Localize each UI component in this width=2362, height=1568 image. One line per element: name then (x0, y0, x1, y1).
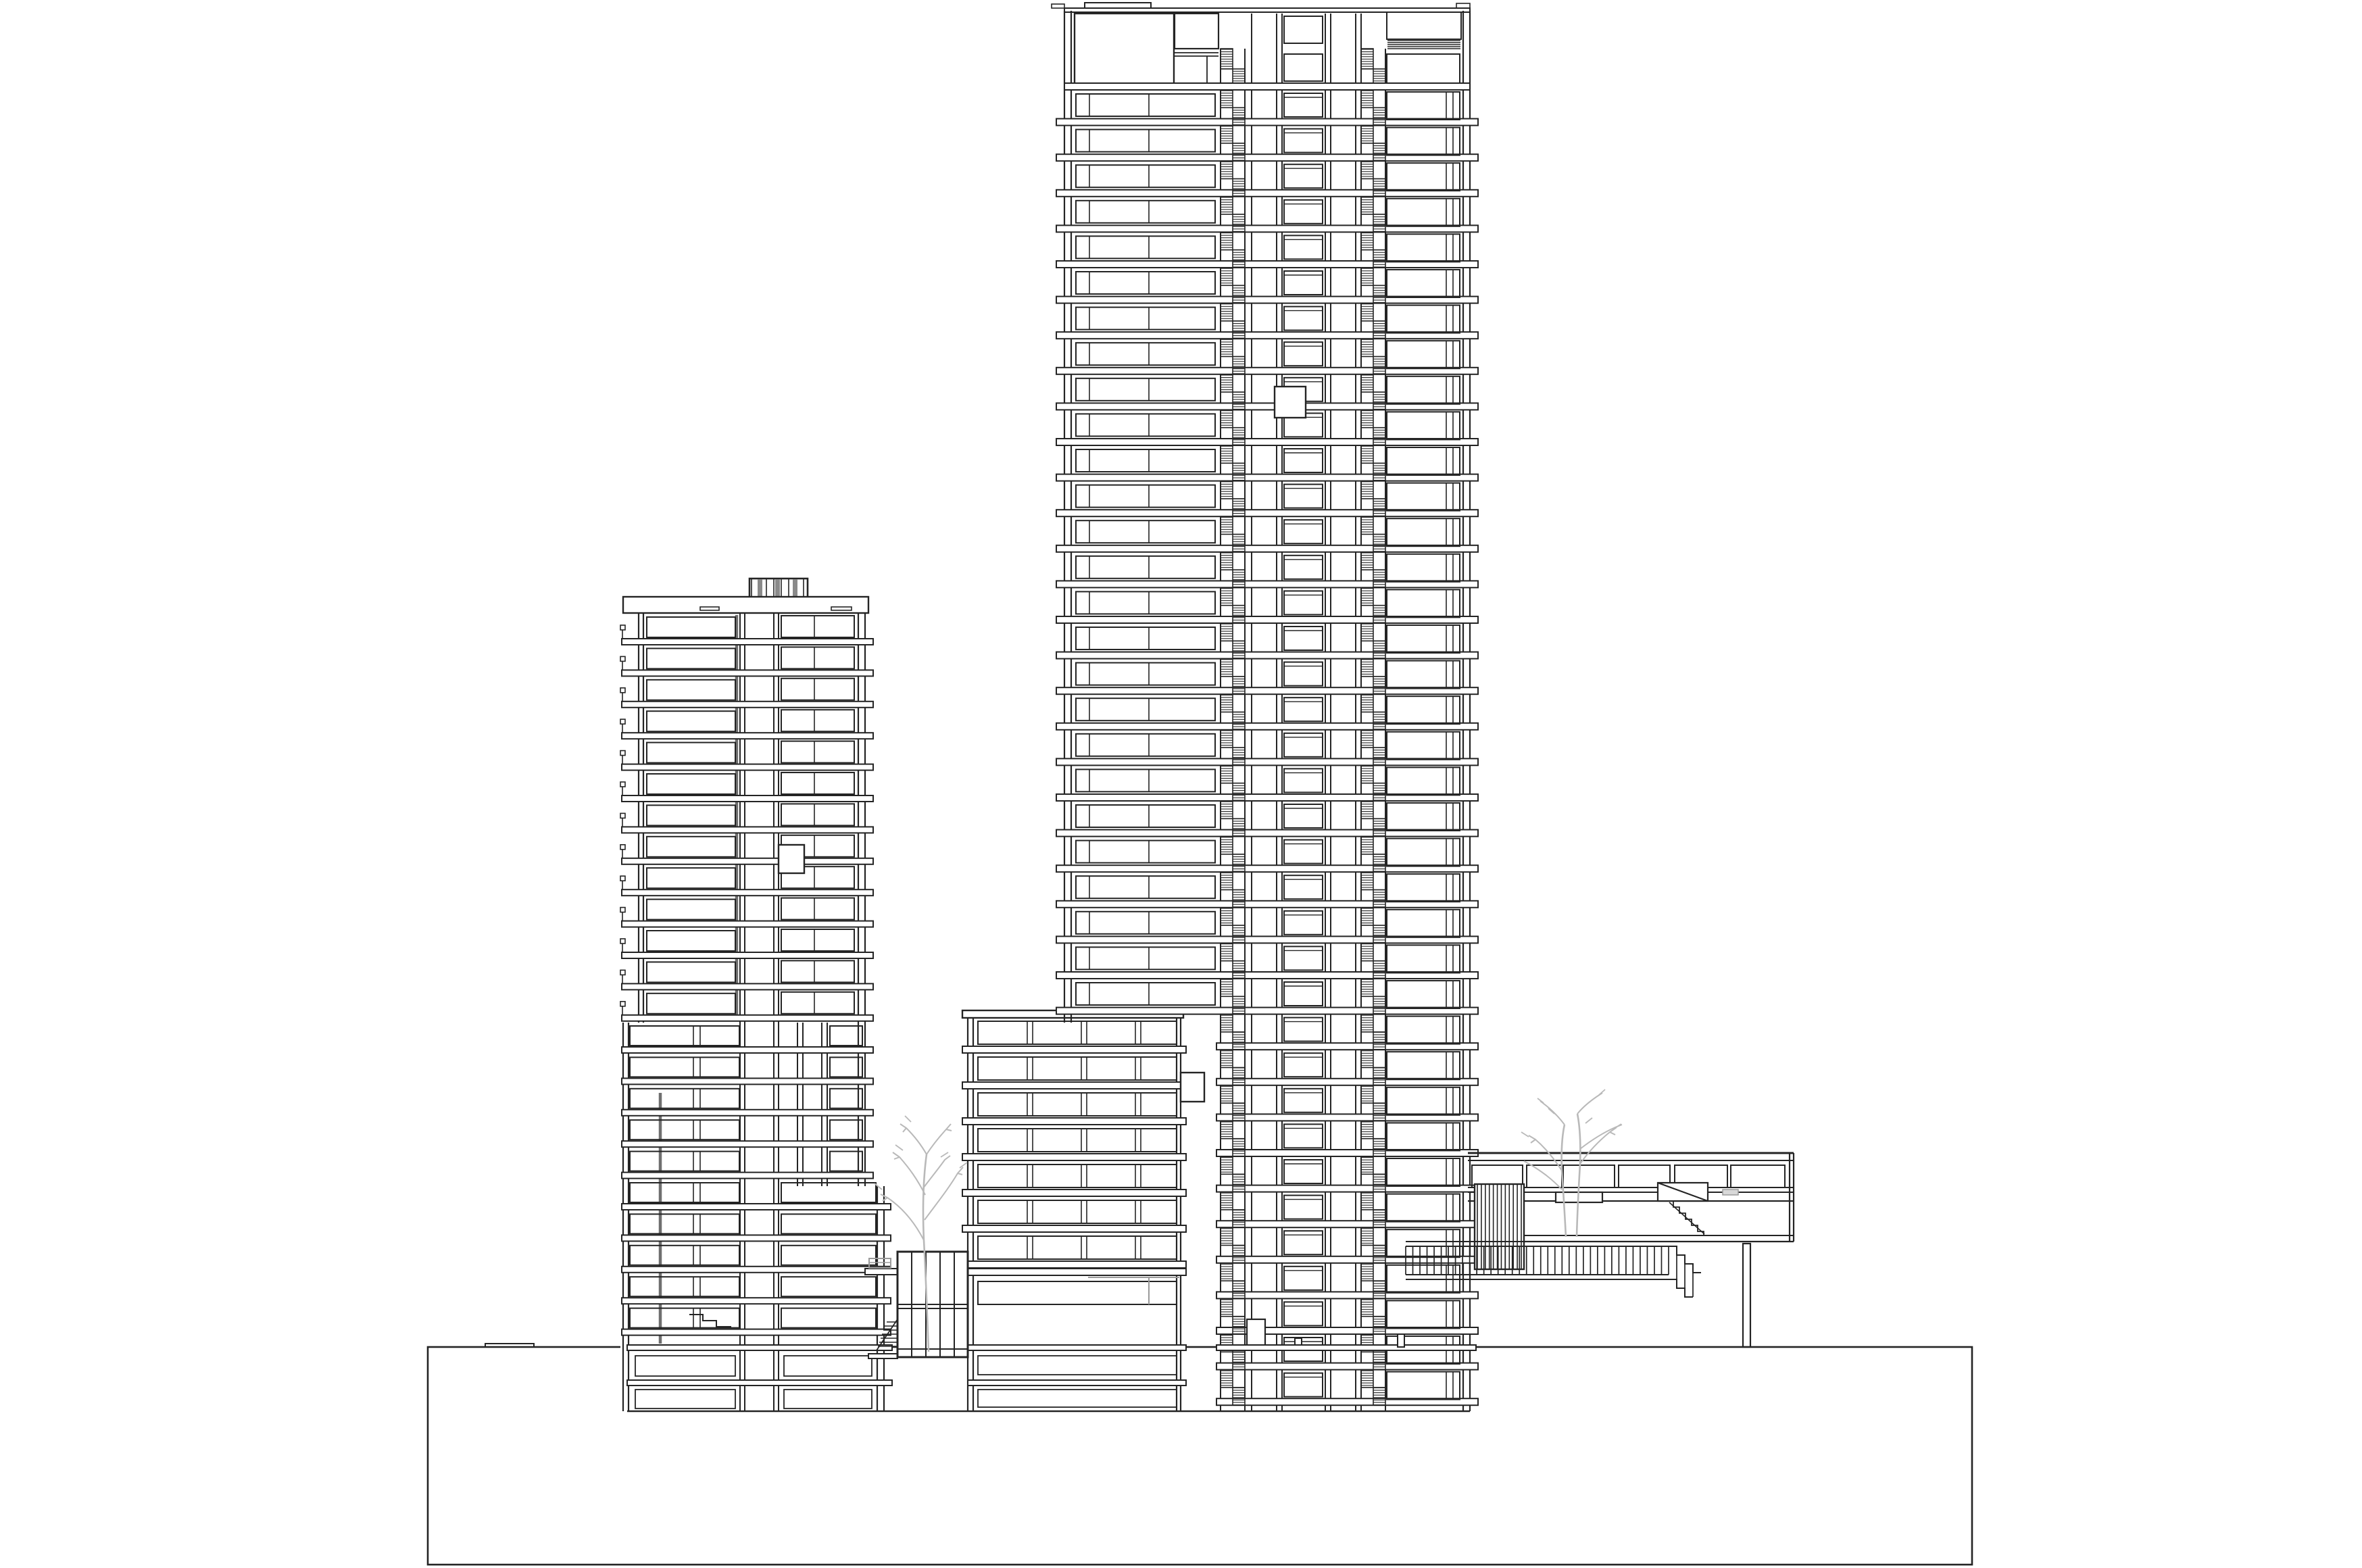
architectural-drawing-canvas (0, 0, 2362, 1568)
building-section-elevation (0, 0, 2362, 1568)
